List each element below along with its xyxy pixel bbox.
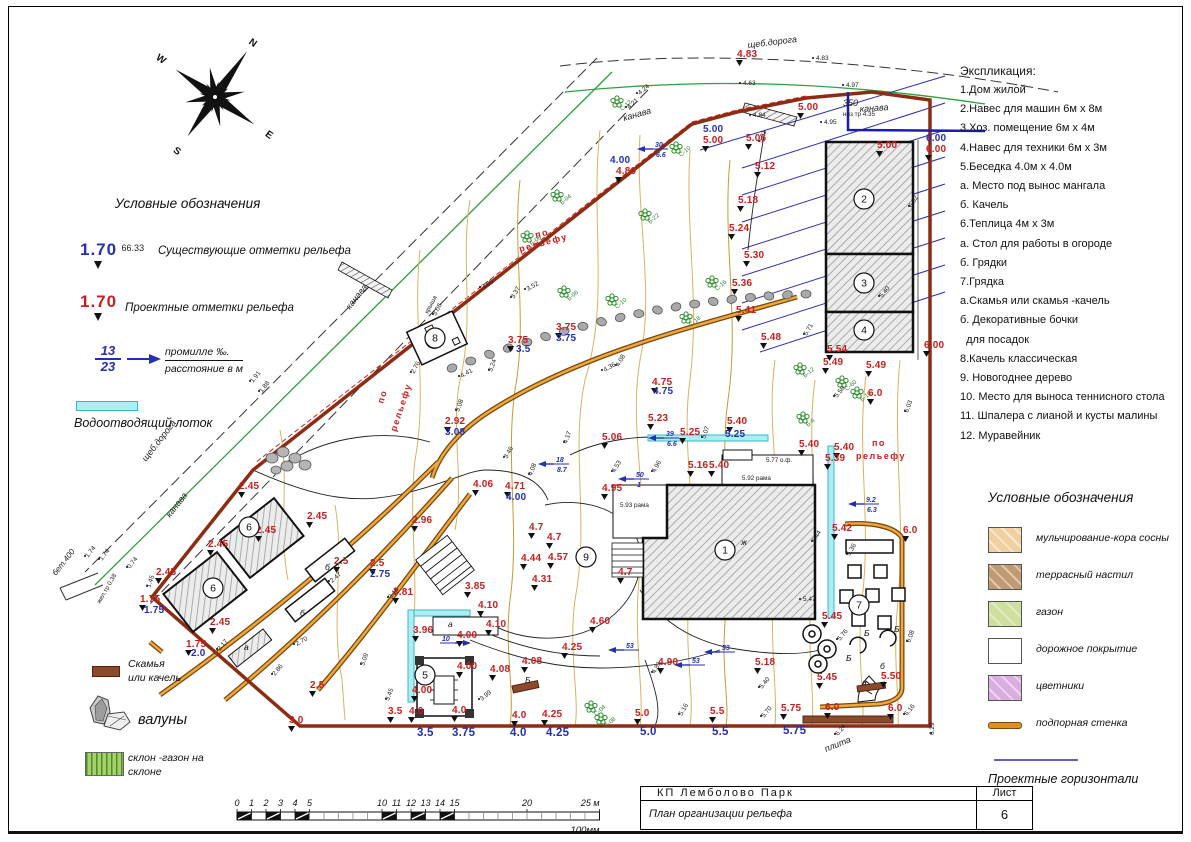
elevation-triangle-icon — [731, 289, 738, 295]
project-elevation-mark: 5.49 — [823, 357, 844, 368]
spot-elevation-label: 5.47 — [803, 596, 816, 603]
elevation-triangle-icon — [601, 443, 608, 449]
elevation-triangle-icon — [601, 494, 608, 500]
elevation-triangle-icon — [821, 622, 828, 628]
project-elevation-mark: 5.40 — [709, 460, 730, 471]
elevation-triangle-icon — [546, 543, 553, 549]
building-number-badge: 3 — [854, 273, 874, 293]
svg-text:50: 50 — [636, 472, 644, 479]
project-elevation-mark: 4.00 — [457, 630, 478, 641]
elevation-triangle-icon — [309, 691, 316, 697]
project-elevation-mark: 5.41 — [736, 305, 757, 316]
scale-tick-label: 20 — [521, 798, 532, 808]
explication-item: для посадок — [960, 331, 1182, 350]
scale-tick-label: 10 — [377, 798, 387, 808]
boulder — [466, 357, 476, 365]
scale-bar: 0123451011121314152025 м100мм — [228, 794, 628, 838]
legend-swatch-label: дорожное покрытие — [1036, 638, 1186, 656]
project-elevation-mark: 4.57 — [548, 552, 569, 563]
project-mark-value: 1.70 — [80, 292, 117, 311]
explication-item: а. Место под вынос мангала — [960, 177, 1182, 196]
project-elevation-mark: 3.85 — [465, 581, 486, 592]
tree-label: С-16 — [714, 279, 728, 292]
legend-swatch — [988, 722, 1022, 729]
project-elevation-mark: 5.06 — [746, 133, 767, 144]
legend-right-title: Условные обозначения — [988, 490, 1188, 505]
svg-text:6.3: 6.3 — [867, 507, 877, 514]
project-elevation-mark: 5.36 — [732, 278, 753, 289]
plan-annotation: по — [375, 388, 389, 404]
scale-tick-label: 15 — [449, 798, 460, 808]
project-elevation-mark: 5.00 — [798, 102, 819, 113]
project-elevation-mark: 4.90 — [658, 657, 679, 668]
spot-elevation-label: 1.45 — [145, 574, 156, 589]
spot-dot — [749, 114, 751, 116]
spot-elevation-label: 4.95 — [824, 119, 837, 126]
project-elevation-mark: 5.48 — [761, 332, 782, 343]
spot-elevation-label: 6.03 — [903, 399, 914, 414]
spot-elevation-label: 3.37 — [510, 285, 523, 300]
tree-symbol: Б-12 — [794, 363, 817, 380]
drawing-title: План организации рельефа — [641, 801, 977, 829]
project-elevation-mark: 4.0 — [452, 705, 467, 716]
legend-right-item: цветники — [988, 675, 1188, 701]
spot-elevation-label: 1.91 — [249, 370, 263, 385]
project-elevation-mark: 4.0 — [512, 710, 527, 721]
boulder — [745, 293, 755, 301]
project-elevation-mark: 5.5 — [710, 706, 725, 717]
svg-text:53: 53 — [626, 643, 634, 650]
scale-tick-label: 12 — [406, 798, 416, 808]
plan-letter-label: а — [244, 642, 249, 652]
project-name: КП Лемболово Парк — [641, 787, 977, 801]
boulder — [651, 305, 663, 316]
tree-label: Б-06 — [566, 289, 580, 302]
svg-text:9.2: 9.2 — [866, 497, 876, 504]
plan-annotation: рельефу — [388, 382, 413, 433]
legend-bench-label-2: или качель — [128, 672, 181, 684]
elevation-triangle-icon — [617, 578, 624, 584]
elevation-triangle-icon — [647, 424, 654, 430]
elevation-triangle-icon — [209, 628, 216, 634]
project-elevation-mark: 2.5 — [370, 558, 385, 569]
spot-elevation-label: 1.74 — [84, 545, 98, 560]
svg-text:6: 6 — [246, 522, 252, 534]
legend-horizontals-label: Проектные горизонтали — [988, 772, 1188, 786]
legend-right-item: газон — [988, 601, 1188, 627]
boulder — [614, 312, 626, 323]
spot-elevation-label: 3.09 — [359, 652, 370, 667]
project-elevation-mark: 2.45 — [239, 481, 260, 492]
boulder — [801, 290, 811, 298]
svg-text:10: 10 — [442, 636, 450, 643]
legend-swatch-label: мульчирование-кора сосны — [1036, 527, 1186, 545]
building-number-badge: 1 — [715, 540, 735, 560]
spot-elevation-label: 3.24 — [487, 358, 498, 373]
project-elevation-mark: 5.06 — [602, 432, 623, 443]
project-elevation-mark: 2.45 — [156, 567, 177, 578]
boulder — [578, 322, 588, 330]
spot-elevation-label: 6.16 — [903, 703, 917, 717]
project-elevation-mark: 3.5 — [388, 706, 403, 717]
plan-letter-label: ж — [740, 537, 748, 547]
tree-symbol: Б-06 — [558, 286, 581, 303]
tree-label: Б-12 — [802, 366, 816, 379]
project-elevation-mark: 5.49 — [866, 360, 887, 371]
explication-item: 2.Навес для машин 6м х 8м — [960, 100, 1182, 119]
svg-text:5: 5 — [422, 670, 428, 682]
legend-swatch-label: цветники — [1036, 675, 1186, 693]
spot-elevation-label: 4.84 — [753, 112, 766, 119]
project-elevation-mark: 2.5 — [334, 556, 349, 567]
elevation-triangle-icon — [760, 343, 767, 349]
slope-fraction: 9.26.3 — [848, 497, 879, 514]
project-elevation-mark: 5.25 — [680, 427, 701, 438]
project-elevation-mark: 4.95 — [602, 483, 623, 494]
project-elevation-mark: 5.00 — [877, 140, 898, 151]
legend-bench-label-1: Скамья — [128, 658, 165, 670]
project-elevation-mark: 5.00 — [703, 135, 724, 146]
project-elevation-mark: 4.06 — [473, 479, 494, 490]
plan-letter-label: Б — [846, 653, 852, 663]
slope-arrow-icon — [127, 353, 161, 365]
scale-tick-label: 1 — [249, 798, 254, 808]
explication-item: б. Декоративные бочки — [960, 311, 1182, 330]
plan-letter-label: Б — [525, 675, 531, 685]
boulders-icon — [86, 692, 134, 738]
elevation-triangle-icon — [797, 113, 804, 119]
existing-elevation-mark: 3.75 — [556, 333, 577, 344]
scale-tick-label: 3 — [278, 798, 283, 808]
spot-elevation-label: 4.08 — [615, 353, 628, 368]
building-number-badge: 4 — [854, 320, 874, 340]
plan-letter-label: б — [880, 661, 886, 671]
plan-letter-label: Б — [864, 628, 870, 638]
elevation-triangle-icon — [561, 653, 568, 659]
boulder — [539, 331, 551, 342]
spot-dot — [812, 57, 814, 59]
spot-elevation-label: 3.46 — [503, 445, 516, 460]
spot-dot — [739, 82, 741, 84]
elevation-triangle-icon — [754, 668, 761, 674]
explication-item: 3.Хоз. помещение 6м х 4м — [960, 119, 1182, 138]
scale-tick-label: 14 — [435, 798, 445, 808]
project-elevation-mark: 6.00 — [924, 340, 945, 351]
elevation-triangle-icon — [780, 714, 787, 720]
existing-elevation-mark: 5.00 — [703, 124, 724, 135]
project-elevation-mark: 4.00 — [457, 661, 478, 672]
spot-elevation-label: 3.99 — [479, 689, 493, 703]
tree-label: С-10 — [614, 297, 628, 310]
elevation-triangle-icon — [745, 144, 752, 150]
elevation-triangle-icon — [736, 60, 743, 66]
elevation-triangle-icon — [867, 399, 874, 405]
explication-item: 5.Беседка 4.0м х 4.0м — [960, 158, 1182, 177]
spot-elevation-label: 2.86 — [271, 663, 285, 677]
mark-triangle-icon — [94, 261, 102, 269]
legend-project-mark: 1.70 — [80, 292, 117, 321]
scale-note: 100мм — [571, 825, 600, 836]
project-elevation-mark: 5.42 — [832, 523, 853, 534]
legend-swatch — [988, 675, 1022, 701]
plan-letter-label: а — [862, 677, 867, 687]
spot-elevation-label: 6.29 — [929, 722, 936, 735]
elevation-triangle-icon — [528, 533, 535, 539]
project-elevation-mark: 5.39 — [825, 453, 846, 464]
boulder — [670, 301, 682, 312]
legend-swatch — [988, 564, 1022, 590]
existing-elevation-mark: 1.75 — [144, 605, 165, 616]
spot-elevation-label: 5.40 — [758, 676, 772, 690]
svg-text:18: 18 — [556, 457, 564, 464]
project-elevation-mark: 4.7 — [547, 532, 562, 543]
legend-right: Условные обозначения мульчирование-кора … — [988, 490, 1188, 786]
slope-denominator: 23 — [95, 360, 121, 374]
existing-mark-value: 1.70 — [80, 240, 117, 259]
svg-text:9: 9 — [583, 552, 589, 564]
project-elevation-mark: 3.0 — [289, 715, 304, 726]
elevation-triangle-icon — [709, 717, 716, 723]
elevation-triangle-icon — [408, 717, 415, 723]
spot-dot — [842, 84, 844, 86]
mark-triangle-icon — [94, 313, 102, 321]
spot-elevation-label: 4.97 — [846, 82, 859, 89]
slope-label-2: расстояние в м — [165, 361, 243, 375]
svg-text:1: 1 — [637, 482, 641, 489]
tree-symbol: С-10 — [606, 294, 629, 311]
legend-existing-label: Существующие отметки рельефа — [158, 245, 351, 257]
elevation-triangle-icon — [477, 611, 484, 617]
legend-project-label: Проектные отметки рельефа — [125, 302, 294, 314]
existing-elevation-mark: 4.25 — [546, 727, 570, 739]
project-elevation-mark: 5.75 — [781, 703, 802, 714]
svg-text:6: 6 — [210, 583, 216, 595]
walkway-outlines — [253, 130, 820, 726]
existing-elevation-mark: 3.5 — [417, 727, 434, 739]
tree-symbol: Б-04 — [551, 190, 574, 207]
tree-symbol: Б-6 — [797, 412, 817, 429]
project-elevation-mark: 6.0 — [868, 388, 883, 399]
elevation-triangle-icon — [822, 368, 829, 374]
elevation-triangle-icon — [451, 716, 458, 722]
spot-elevation-label: 3.08 — [454, 398, 465, 413]
project-elevation-mark: 1.75 — [140, 594, 161, 605]
explication-item: 1.Дом жилой — [960, 81, 1182, 100]
spot-elevation-label: 4.96 — [651, 459, 664, 474]
project-elevation-mark: 5.18 — [755, 657, 776, 668]
spot-elevation-label: 2.47 — [329, 571, 343, 585]
existing-elevation-mark: 3.08 — [445, 427, 466, 438]
spot-dot — [820, 121, 822, 123]
plan-annotation: 5.77 о.ф. — [766, 457, 792, 464]
boulder — [690, 300, 700, 308]
explication-item: 4.Навес для техники 6м х 3м — [960, 139, 1182, 158]
plan-letter-label: Б — [894, 624, 900, 634]
existing-elevation-mark: 2.75 — [370, 569, 391, 580]
boulder-row — [446, 289, 811, 373]
tree-label: Б-04 — [559, 193, 573, 206]
svg-text:6.6: 6.6 — [667, 441, 677, 448]
legend-left-title: Условные обозначения — [115, 196, 260, 211]
elevation-triangle-icon — [411, 526, 418, 532]
building-number-badge: 9 — [576, 547, 596, 567]
legend-swatch-label: террасный настил — [1036, 564, 1186, 582]
project-elevation-mark: 2.45 — [208, 539, 229, 550]
spot-elevation-label: 4.17 — [562, 430, 573, 445]
tree-label: Б-22 — [647, 212, 661, 225]
explication-item: 12. Муравейник — [960, 427, 1182, 446]
explication-title: Экспликация: — [960, 64, 1182, 78]
elevation-triangle-icon — [464, 592, 471, 598]
spot-elevation-label: 4.41 — [460, 367, 475, 380]
existing-elevation-mark: 4.00 — [506, 492, 527, 503]
spot-elevation-label: 1.74 — [98, 548, 112, 563]
elevation-triangle-icon — [737, 206, 744, 212]
legend-tray-swatch — [76, 401, 138, 411]
legend-slope-lawn-swatch — [85, 752, 124, 776]
project-elevation-mark: 4.7 — [618, 567, 633, 578]
legend-swatch-label: подпорная стенка — [1036, 712, 1186, 730]
existing-mark-extra: 66.33 — [122, 243, 145, 253]
spot-elevation-label: 3.45 — [384, 687, 395, 702]
plan-annotation: 350 — [843, 98, 858, 108]
project-elevation-mark: 5.40 — [799, 439, 820, 450]
boulder — [707, 296, 719, 307]
legend-swatch — [988, 601, 1022, 627]
plan-letter-label: а — [448, 619, 453, 629]
project-elevation-mark: 5.16 — [688, 460, 709, 471]
elevation-triangle-icon — [816, 683, 823, 689]
legend-right-item: мульчирование-кора сосны — [988, 527, 1188, 553]
existing-elevation-mark: 6.00 — [926, 133, 947, 144]
slope-numerator: 13 — [95, 344, 121, 358]
svg-text:53: 53 — [722, 645, 730, 652]
project-elevation-mark: 3.75 — [556, 322, 577, 333]
existing-elevation-mark: 4.75 — [653, 386, 674, 397]
building-number-badge: 6 — [239, 517, 259, 537]
sheet-number: 6 — [977, 801, 1032, 829]
project-elevation-mark: 4.80 — [616, 166, 637, 177]
existing-elevation-mark: 3.75 — [452, 727, 476, 739]
explication-item: 9. Новогоднее дерево — [960, 369, 1182, 388]
boulder — [634, 310, 644, 318]
existing-elevation-mark: 5.25 — [725, 429, 746, 440]
legend-right-item: дорожное покрытие — [988, 638, 1188, 664]
project-elevation-mark: 5.40 — [834, 442, 855, 453]
project-elevation-mark: 6.0 — [825, 702, 840, 713]
spot-elevation-label: 5.70 — [760, 705, 774, 719]
compass-letter-e: E — [263, 129, 275, 142]
svg-text:8.7: 8.7 — [557, 467, 568, 474]
explication-item: б. Грядки — [960, 254, 1182, 273]
svg-text:4: 4 — [861, 325, 867, 337]
project-elevation-mark: 6.0 — [888, 703, 903, 714]
spot-elevation-label: 0.74 — [126, 556, 140, 571]
project-elevation-mark: 4.08 — [490, 664, 511, 675]
svg-text:3: 3 — [861, 278, 867, 290]
plan-annotation: 5.93 рама — [620, 502, 649, 509]
project-elevation-mark: 4.25 — [542, 709, 563, 720]
compass-letter-w: W — [154, 52, 169, 67]
project-elevation-mark: 4.00 — [412, 685, 433, 696]
svg-text:2: 2 — [861, 194, 867, 206]
elevation-triangle-icon — [392, 598, 399, 604]
project-elevation-mark: 5.50 — [881, 671, 902, 682]
project-elevation-mark: 5.24 — [729, 223, 750, 234]
scale-tick-label: 25 м — [580, 798, 600, 808]
compass-rose: NESW — [154, 37, 275, 158]
legend-swatch — [988, 638, 1022, 664]
project-elevation-mark: 5.23 — [648, 413, 669, 424]
project-elevation-mark: 5.54 — [827, 344, 848, 355]
elevation-triangle-icon — [531, 585, 538, 591]
legend-swatch-label: газон — [1036, 601, 1186, 619]
project-elevation-mark: 4.10 — [486, 619, 507, 630]
legend-slope-lawn-label-1: склон -газон на — [128, 752, 204, 764]
elevation-triangle-icon — [387, 717, 394, 723]
existing-elevation-mark: 5.0 — [640, 726, 657, 738]
project-elevation-mark: 5.0 — [635, 708, 650, 719]
existing-elevation-mark: 5.75 — [783, 725, 807, 737]
compass-letter-n: N — [246, 37, 258, 50]
svg-text:53: 53 — [692, 658, 700, 665]
elevation-triangle-icon — [687, 471, 694, 477]
existing-elevation-mark: 2.0 — [191, 648, 206, 659]
project-elevation-mark: 2.45 — [210, 617, 231, 628]
project-elevation-mark: 5.18 — [738, 195, 759, 206]
project-elevation-mark: 4.71 — [505, 481, 526, 492]
title-block: КП Лемболово Парк Лист План организации … — [640, 786, 1033, 830]
existing-elevation-mark: 4.00 — [610, 155, 631, 166]
scale-tick-label: 4 — [292, 798, 297, 808]
legend-right-item: террасный настил — [988, 564, 1188, 590]
existing-elevation-mark: 3.5 — [516, 344, 531, 355]
project-elevation-mark: 4.25 — [562, 642, 583, 653]
svg-text:1: 1 — [722, 545, 728, 557]
tree-label: Б-6 — [805, 418, 816, 429]
legend-right-item: подпорная стенка — [988, 712, 1188, 730]
legend-existing-mark: 1.70 66.33 — [80, 240, 144, 269]
explication-item: 6.Теплица 4м х 3м — [960, 215, 1182, 234]
building-number-badge: 8 — [425, 328, 445, 348]
project-elevation-mark: 4.83 — [737, 49, 758, 60]
existing-elevation-mark: 4.0 — [510, 727, 527, 739]
spot-elevation-label: 4.63 — [743, 80, 756, 87]
plan-annotation: канава — [344, 282, 370, 311]
elevation-triangle-icon — [521, 667, 528, 673]
project-elevation-mark: 4.7 — [529, 522, 544, 533]
elevation-triangle-icon — [288, 726, 295, 732]
elevation-triangle-icon — [520, 564, 527, 570]
slope-fraction: 53 — [608, 643, 639, 653]
building-number-badge: 7 — [849, 595, 869, 615]
elevation-triangle-icon — [743, 261, 750, 267]
spot-elevation-label: 6.08 — [905, 629, 916, 644]
explication-item: 8.Качель классическая — [960, 350, 1182, 369]
plan-annotation: щеб.дорога — [747, 34, 797, 50]
project-elevation-mark: 5.12 — [755, 161, 776, 172]
plan-annotation: рельефу — [856, 451, 906, 461]
explication-list: Экспликация: 1.Дом жилой 2.Навес для маш… — [960, 64, 1182, 446]
project-elevation-mark: 2.5 — [310, 680, 325, 691]
elevation-triangle-icon — [238, 492, 245, 498]
explication-item: 7.Грядка — [960, 273, 1182, 292]
boulder — [446, 363, 458, 374]
elevation-triangle-icon — [754, 172, 761, 178]
tree-symbol: С-16 — [706, 276, 729, 293]
explication-item: а.Скамья или скамья -качель — [960, 292, 1182, 311]
elevation-triangle-icon — [708, 471, 715, 477]
